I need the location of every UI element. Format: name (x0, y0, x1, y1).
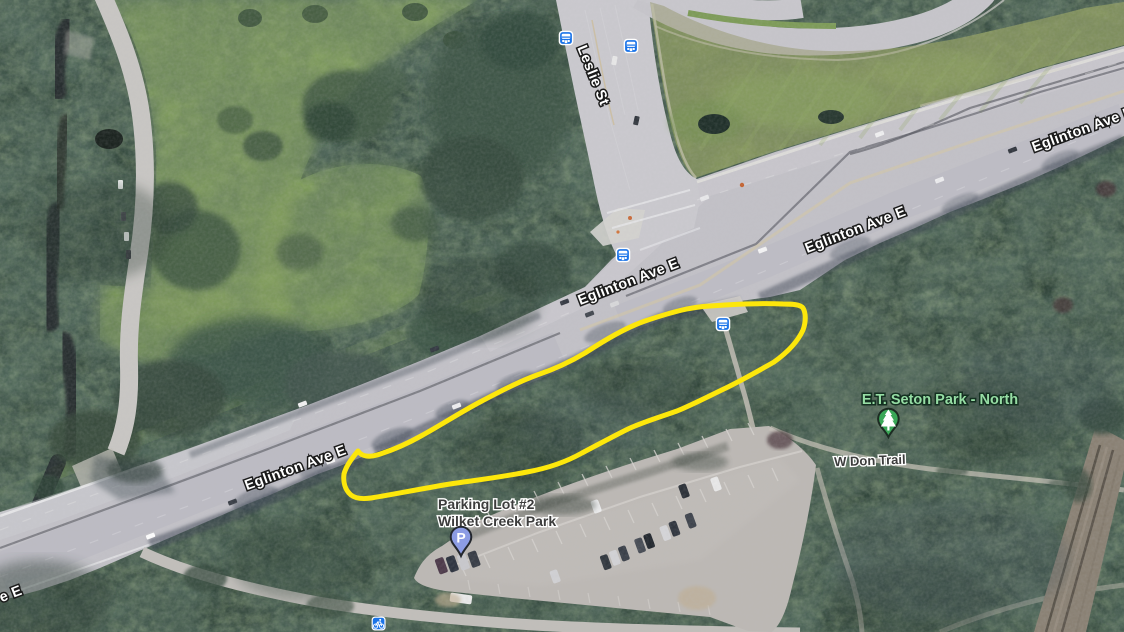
svg-text:E.T. Seton Park - North: E.T. Seton Park - North (862, 392, 1018, 408)
svg-text:P: P (456, 530, 465, 546)
svg-text:Parking Lot #2: Parking Lot #2 (438, 496, 535, 512)
svg-text:W Don Trail: W Don Trail (834, 452, 906, 469)
svg-text:Wilket Creek Park: Wilket Creek Park (438, 513, 556, 529)
